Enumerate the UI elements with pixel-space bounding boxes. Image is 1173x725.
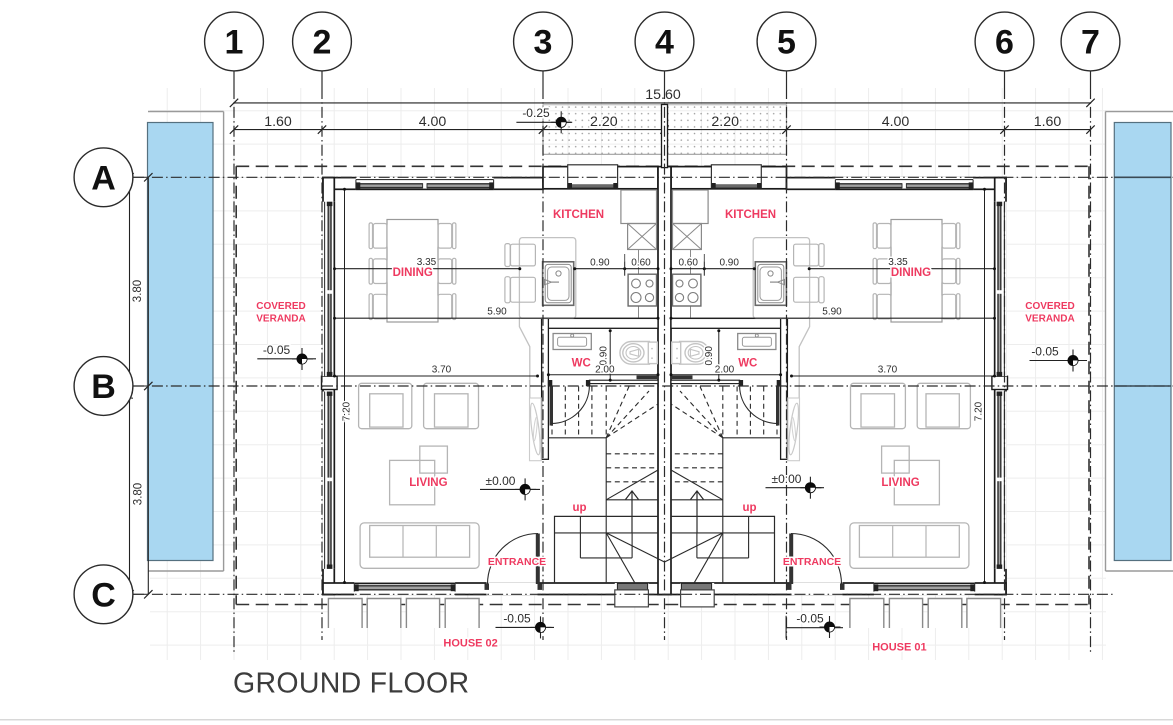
svg-text:WC: WC bbox=[738, 358, 757, 370]
svg-text:4: 4 bbox=[655, 24, 674, 62]
svg-text:2.00: 2.00 bbox=[595, 364, 615, 375]
svg-text:4.00: 4.00 bbox=[419, 114, 447, 130]
svg-text:0.90: 0.90 bbox=[590, 257, 610, 268]
svg-text:HOUSE 01: HOUSE 01 bbox=[872, 642, 926, 654]
svg-text:-0.05: -0.05 bbox=[1031, 345, 1059, 359]
svg-text:LIVING: LIVING bbox=[409, 477, 447, 489]
svg-text:±0:00: ±0:00 bbox=[772, 472, 802, 486]
svg-text:LIVING: LIVING bbox=[881, 477, 919, 489]
svg-text:2.20: 2.20 bbox=[590, 114, 618, 130]
svg-text:WC: WC bbox=[572, 358, 591, 370]
svg-text:4.00: 4.00 bbox=[882, 114, 910, 130]
svg-text:0.90: 0.90 bbox=[599, 346, 610, 366]
svg-text:VERANDA: VERANDA bbox=[1025, 314, 1074, 325]
svg-text:up: up bbox=[572, 502, 586, 514]
svg-text:3: 3 bbox=[534, 24, 553, 62]
svg-text:DINING: DINING bbox=[393, 267, 433, 279]
svg-text:-0.25: -0.25 bbox=[522, 106, 550, 120]
svg-text:COVERED: COVERED bbox=[1025, 301, 1074, 312]
svg-text:3.70: 3.70 bbox=[878, 365, 898, 376]
svg-text:0.90: 0.90 bbox=[719, 257, 739, 268]
svg-text:3.80: 3.80 bbox=[133, 483, 145, 505]
svg-text:COVERED: COVERED bbox=[256, 301, 305, 312]
svg-text:DINING: DINING bbox=[891, 267, 931, 279]
svg-text:7.20: 7.20 bbox=[342, 401, 353, 421]
svg-text:5.90: 5.90 bbox=[487, 307, 507, 318]
svg-text:ENTRANCE: ENTRANCE bbox=[783, 556, 841, 568]
svg-text:5: 5 bbox=[777, 24, 796, 62]
svg-text:0.60: 0.60 bbox=[631, 257, 651, 268]
svg-text:KITCHEN: KITCHEN bbox=[725, 209, 776, 221]
svg-text:1.60: 1.60 bbox=[264, 114, 292, 130]
svg-text:ENTRANCE: ENTRANCE bbox=[488, 556, 546, 568]
svg-text:3.70: 3.70 bbox=[432, 365, 452, 376]
svg-text:±0.00: ±0.00 bbox=[486, 474, 516, 488]
svg-text:7.20: 7.20 bbox=[974, 401, 985, 421]
svg-text:0.90: 0.90 bbox=[704, 346, 715, 366]
svg-text:-0.05: -0.05 bbox=[503, 611, 531, 625]
svg-text:3.80: 3.80 bbox=[132, 280, 144, 302]
svg-text:up: up bbox=[742, 502, 756, 514]
svg-text:1.60: 1.60 bbox=[1034, 114, 1062, 130]
svg-text:2: 2 bbox=[313, 24, 332, 62]
svg-text:-0.05: -0.05 bbox=[263, 343, 291, 357]
svg-text:15.60: 15.60 bbox=[645, 87, 681, 103]
svg-text:1: 1 bbox=[225, 24, 244, 62]
svg-text:7: 7 bbox=[1081, 24, 1100, 62]
svg-text:A: A bbox=[91, 159, 116, 197]
svg-text:-0.05: -0.05 bbox=[796, 612, 824, 626]
svg-text:B: B bbox=[91, 368, 116, 406]
svg-text:2.20: 2.20 bbox=[711, 114, 739, 130]
svg-text:GROUND FLOOR: GROUND FLOOR bbox=[233, 668, 469, 700]
svg-text:0.60: 0.60 bbox=[678, 257, 698, 268]
svg-text:HOUSE 02: HOUSE 02 bbox=[443, 638, 497, 650]
svg-text:VERANDA: VERANDA bbox=[256, 314, 305, 325]
svg-text:5.90: 5.90 bbox=[822, 307, 842, 318]
svg-text:2.00: 2.00 bbox=[715, 364, 735, 375]
svg-text:C: C bbox=[91, 576, 116, 614]
svg-text:KITCHEN: KITCHEN bbox=[553, 209, 604, 221]
svg-text:6: 6 bbox=[995, 24, 1014, 62]
